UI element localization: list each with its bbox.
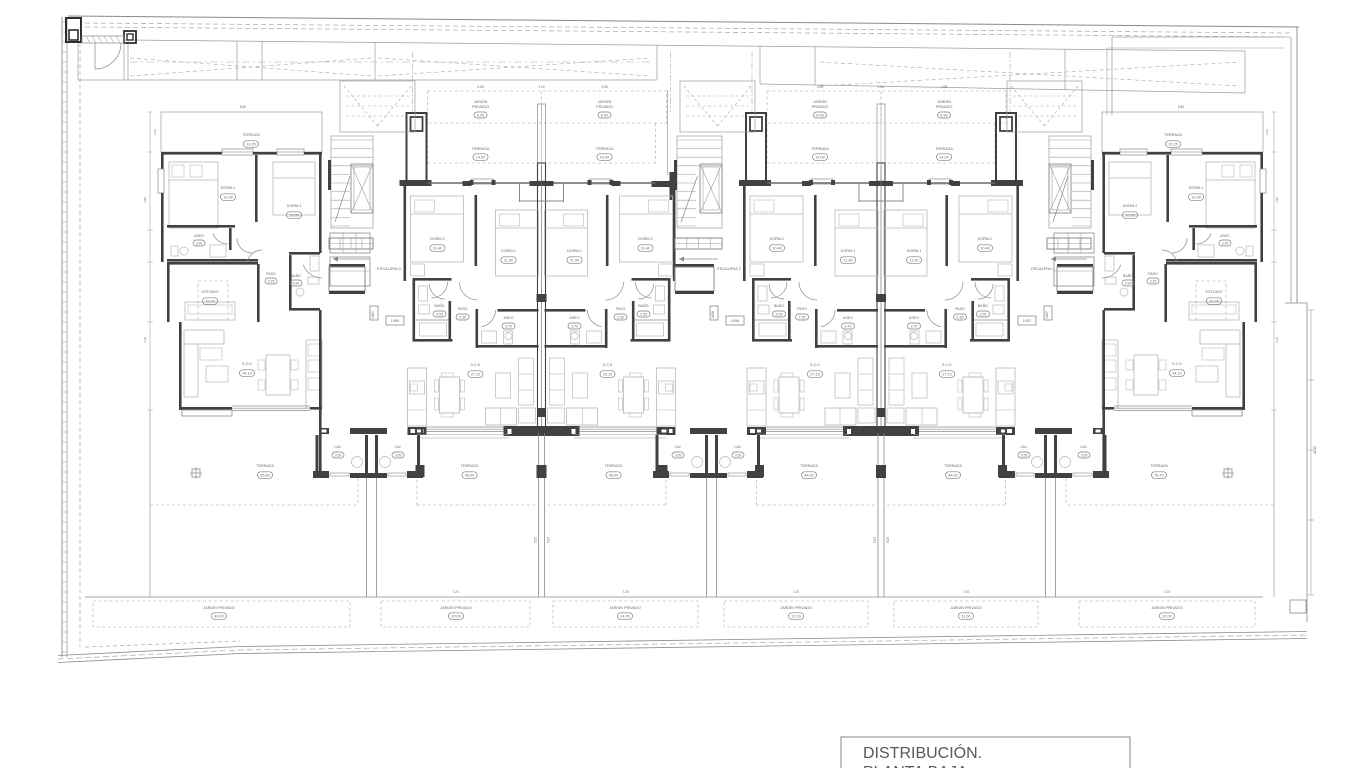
svg-text:7.20: 7.20 (1164, 590, 1170, 594)
svg-text:TERRAZA: TERRAZA (605, 464, 623, 468)
svg-text:48.00: 48.00 (804, 474, 814, 478)
svg-text:PASO: PASO (1148, 272, 1158, 276)
svg-text:TERRAZA: TERRAZA (1150, 464, 1168, 468)
svg-text:ESTUDIO: ESTUDIO (202, 290, 219, 294)
svg-text:7.20: 7.20 (452, 590, 458, 594)
svg-text:15.25: 15.25 (1209, 300, 1219, 304)
svg-text:12.90: 12.90 (1191, 196, 1201, 200)
svg-text:6.05: 6.05 (816, 114, 823, 118)
svg-text:14.00: 14.00 (815, 156, 825, 160)
svg-text:3.55: 3.55 (1021, 454, 1028, 458)
svg-text:48.00: 48.00 (465, 474, 475, 478)
svg-text:7.20: 7.20 (622, 590, 628, 594)
svg-text:27.10: 27.10 (942, 373, 952, 377)
svg-text:2.35: 2.35 (617, 316, 624, 320)
svg-text:DORM.2: DORM.2 (638, 237, 653, 241)
svg-text:4.05: 4.05 (817, 85, 824, 89)
svg-text:3.55: 3.55 (436, 313, 443, 317)
svg-text:ASEO: ASEO (909, 316, 919, 320)
svg-text:DORM.2: DORM.2 (978, 237, 993, 241)
svg-text:LAV.: LAV. (394, 445, 401, 449)
svg-text:S.C.K: S.C.K (810, 363, 820, 367)
svg-text:TERRAZA: TERRAZA (472, 147, 490, 151)
svg-text:3.70: 3.70 (911, 325, 918, 329)
svg-text:TERRAZA: TERRAZA (811, 147, 829, 151)
svg-text:TERRAZA: TERRAZA (800, 464, 818, 468)
svg-text:ASEO: ASEO (1220, 234, 1230, 238)
svg-text:1458: 1458 (711, 311, 715, 319)
svg-text:12.00: 12.00 (1162, 615, 1172, 619)
svg-text:3.55: 3.55 (980, 313, 987, 317)
svg-text:65.80: 65.80 (260, 474, 270, 478)
svg-text:ASEO: ASEO (570, 316, 580, 320)
svg-text:PASO: PASO (797, 307, 807, 311)
svg-text:4.10: 4.10 (143, 337, 147, 343)
svg-text:3.90: 3.90 (1125, 282, 1132, 286)
svg-text:10.25: 10.25 (246, 143, 256, 147)
svg-text:15.25: 15.25 (205, 300, 215, 304)
svg-text:48.00: 48.00 (609, 474, 619, 478)
svg-text:34.10: 34.10 (1172, 372, 1182, 376)
svg-text:3.90: 3.90 (293, 282, 300, 286)
svg-text:75.70: 75.70 (1154, 474, 1164, 478)
svg-text:S.C.K: S.C.K (471, 363, 481, 367)
svg-text:PRIVADO: PRIVADO (936, 105, 953, 109)
svg-text:S.C.K: S.C.K (942, 363, 952, 367)
svg-text:TERRAZA: TERRAZA (256, 464, 274, 468)
svg-text:6.80: 6.80 (240, 105, 246, 109)
svg-text:DORM.1: DORM.1 (1189, 186, 1204, 190)
svg-text:PASO: PASO (458, 307, 468, 311)
svg-text:2.35: 2.35 (459, 316, 466, 320)
svg-text:DORM.1: DORM.1 (567, 249, 582, 253)
svg-text:PLANTA BAJA: PLANTA BAJA (863, 764, 968, 768)
svg-text:5.05: 5.05 (547, 537, 551, 543)
svg-text:S.C.K: S.C.K (242, 362, 252, 366)
svg-text:80.00: 80.00 (214, 615, 224, 619)
svg-text:PRIVADO: PRIVADO (812, 105, 829, 109)
svg-text:4.10: 4.10 (1275, 337, 1279, 343)
svg-text:JARDÍN: JARDÍN (937, 100, 951, 104)
svg-text:3.90: 3.90 (1222, 242, 1229, 246)
svg-text:14.00: 14.00 (620, 615, 630, 619)
svg-text:3.55: 3.55 (335, 454, 342, 458)
svg-text:1.00: 1.00 (878, 85, 884, 89)
svg-text:29.10: 29.10 (603, 373, 613, 377)
svg-text:LAV.: LAV. (1020, 445, 1027, 449)
svg-text:14.00: 14.00 (939, 156, 949, 160)
svg-text:DORM.1: DORM.1 (841, 249, 856, 253)
svg-text:3.90: 3.90 (196, 242, 203, 246)
svg-text:DORM.2: DORM.2 (287, 204, 302, 208)
svg-text:ASEO: ASEO (843, 316, 853, 320)
svg-text:LAV.: LAV. (674, 445, 681, 449)
svg-text:TERRAZA: TERRAZA (461, 464, 479, 468)
svg-text:10.00: 10.00 (451, 615, 461, 619)
svg-text:DORM.2: DORM.2 (770, 237, 785, 241)
svg-text:JARDÍN PRIVADO: JARDÍN PRIVADO (609, 606, 641, 610)
svg-text:10.40: 10.40 (433, 247, 443, 251)
svg-text:6.90: 6.90 (601, 114, 608, 118)
svg-text:DORM.2: DORM.2 (430, 237, 445, 241)
svg-text:TERRAZA: TERRAZA (944, 464, 962, 468)
svg-text:3.55: 3.55 (395, 454, 402, 458)
svg-text:15.90: 15.90 (600, 156, 610, 160)
svg-text:S.C.K: S.C.K (603, 363, 613, 367)
svg-text:PRIVADO: PRIVADO (472, 105, 489, 109)
svg-text:34.10: 34.10 (242, 372, 252, 376)
svg-text:3.25: 3.25 (1150, 280, 1157, 284)
svg-text:3.55: 3.55 (675, 454, 682, 458)
svg-text:3.55: 3.55 (640, 313, 647, 317)
svg-text:ESCALERA 3: ESCALERA 3 (377, 266, 401, 271)
svg-text:10.40: 10.40 (980, 247, 990, 251)
svg-text:48.00: 48.00 (948, 474, 958, 478)
svg-text:5.05: 5.05 (534, 537, 538, 543)
svg-text:DISTRIBUCIÓN.: DISTRIBUCIÓN. (863, 743, 982, 762)
svg-text:4.95: 4.95 (601, 85, 608, 89)
svg-text:LAV.: LAV. (734, 445, 741, 449)
svg-text:1457: 1457 (1023, 319, 1031, 323)
svg-text:7.20: 7.20 (793, 590, 799, 594)
svg-text:TERRAZA: TERRAZA (242, 133, 260, 137)
svg-text:10.05: 10.05 (289, 214, 299, 218)
svg-text:10.40: 10.40 (641, 247, 651, 251)
svg-text:DORM.1: DORM.1 (501, 249, 516, 253)
svg-text:LAV.: LAV. (334, 445, 341, 449)
svg-text:DORM.1: DORM.1 (221, 186, 236, 190)
svg-text:ESCALERA 2: ESCALERA 2 (717, 266, 741, 271)
svg-text:JARDÍN PRIVADO: JARDÍN PRIVADO (950, 606, 982, 610)
svg-text:4.05: 4.05 (477, 85, 484, 89)
svg-text:12.90: 12.90 (223, 196, 233, 200)
svg-text:1457: 1457 (1045, 311, 1049, 319)
svg-text:ASEO: ASEO (504, 316, 514, 320)
svg-text:JARDÍN: JARDÍN (474, 100, 488, 104)
svg-text:3.55: 3.55 (735, 454, 742, 458)
svg-text:3.70: 3.70 (505, 325, 512, 329)
svg-text:5.05: 5.05 (886, 537, 890, 543)
svg-text:2.30: 2.30 (1265, 129, 1269, 135)
svg-text:27.10: 27.10 (810, 373, 820, 377)
svg-text:DORM.2: DORM.2 (1123, 204, 1138, 208)
svg-text:3.05: 3.05 (1275, 197, 1279, 203)
svg-text:10.25: 10.25 (1168, 143, 1178, 147)
svg-text:11.90: 11.90 (570, 259, 579, 263)
svg-text:14.00: 14.00 (476, 156, 486, 160)
svg-text:ESCALERA 1: ESCALERA 1 (1031, 266, 1055, 271)
svg-text:11.00: 11.00 (961, 615, 970, 619)
svg-text:11.90: 11.90 (843, 259, 852, 263)
svg-text:DORM.1: DORM.1 (907, 249, 922, 253)
svg-text:5.05: 5.05 (873, 537, 877, 543)
svg-text:LAV.: LAV. (1080, 445, 1087, 449)
svg-text:6.05: 6.05 (477, 114, 484, 118)
svg-text:BAÑO: BAÑO (978, 303, 988, 308)
svg-text:JARDÍN PRIVADO: JARDÍN PRIVADO (440, 606, 472, 610)
svg-text:BAÑO: BAÑO (291, 273, 301, 278)
svg-text:11.60: 11.60 (1313, 446, 1317, 454)
svg-text:1458: 1458 (731, 319, 739, 323)
svg-text:TERRAZA: TERRAZA (935, 147, 953, 151)
svg-text:3.05: 3.05 (143, 197, 147, 203)
svg-text:3.55: 3.55 (1081, 454, 1088, 458)
svg-text:11.90: 11.90 (909, 259, 918, 263)
svg-text:11.90: 11.90 (504, 259, 513, 263)
svg-text:BAÑO: BAÑO (434, 303, 444, 308)
svg-text:PASO: PASO (955, 307, 965, 311)
svg-text:JARDÍN PRIVADO: JARDÍN PRIVADO (203, 606, 235, 610)
svg-text:PASO: PASO (266, 272, 276, 276)
svg-text:1460: 1460 (371, 311, 375, 319)
svg-text:BAÑO: BAÑO (774, 303, 784, 308)
svg-text:JARDÍN PRIVADO: JARDÍN PRIVADO (1151, 606, 1183, 610)
svg-text:PRIVADO: PRIVADO (596, 105, 613, 109)
svg-text:TERRAZA: TERRAZA (1164, 133, 1182, 137)
svg-text:3.55: 3.55 (776, 313, 783, 317)
svg-text:3.70: 3.70 (845, 325, 852, 329)
svg-text:12.00: 12.00 (791, 615, 801, 619)
svg-text:3.70: 3.70 (571, 325, 578, 329)
svg-text:3.25: 3.25 (268, 280, 275, 284)
svg-text:2.30: 2.30 (153, 129, 157, 135)
svg-text:JARDÍN: JARDÍN (598, 100, 612, 104)
svg-text:2.35: 2.35 (799, 316, 806, 320)
svg-text:6.80: 6.80 (1178, 105, 1184, 109)
svg-text:JARDÍN PRIVADO: JARDÍN PRIVADO (780, 606, 812, 610)
svg-text:TERRAZA: TERRAZA (596, 147, 614, 151)
svg-text:10.05: 10.05 (1125, 214, 1135, 218)
svg-text:BAÑO: BAÑO (638, 303, 648, 308)
svg-text:1460: 1460 (391, 319, 399, 323)
svg-text:4.95: 4.95 (941, 85, 948, 89)
svg-text:10.40: 10.40 (772, 247, 782, 251)
svg-text:1.00: 1.00 (538, 85, 544, 89)
svg-text:6.90: 6.90 (940, 114, 947, 118)
svg-text:JARDÍN: JARDÍN (813, 100, 827, 104)
svg-text:ESTUDIO: ESTUDIO (1206, 290, 1223, 294)
svg-text:27.10: 27.10 (471, 373, 481, 377)
svg-text:BAÑO: BAÑO (1123, 273, 1133, 278)
svg-text:2.35: 2.35 (957, 316, 964, 320)
svg-text:S.C.K: S.C.K (1172, 362, 1182, 366)
svg-text:PASO: PASO (616, 307, 626, 311)
svg-text:ASEO: ASEO (194, 234, 204, 238)
svg-text:7.20: 7.20 (963, 590, 969, 594)
